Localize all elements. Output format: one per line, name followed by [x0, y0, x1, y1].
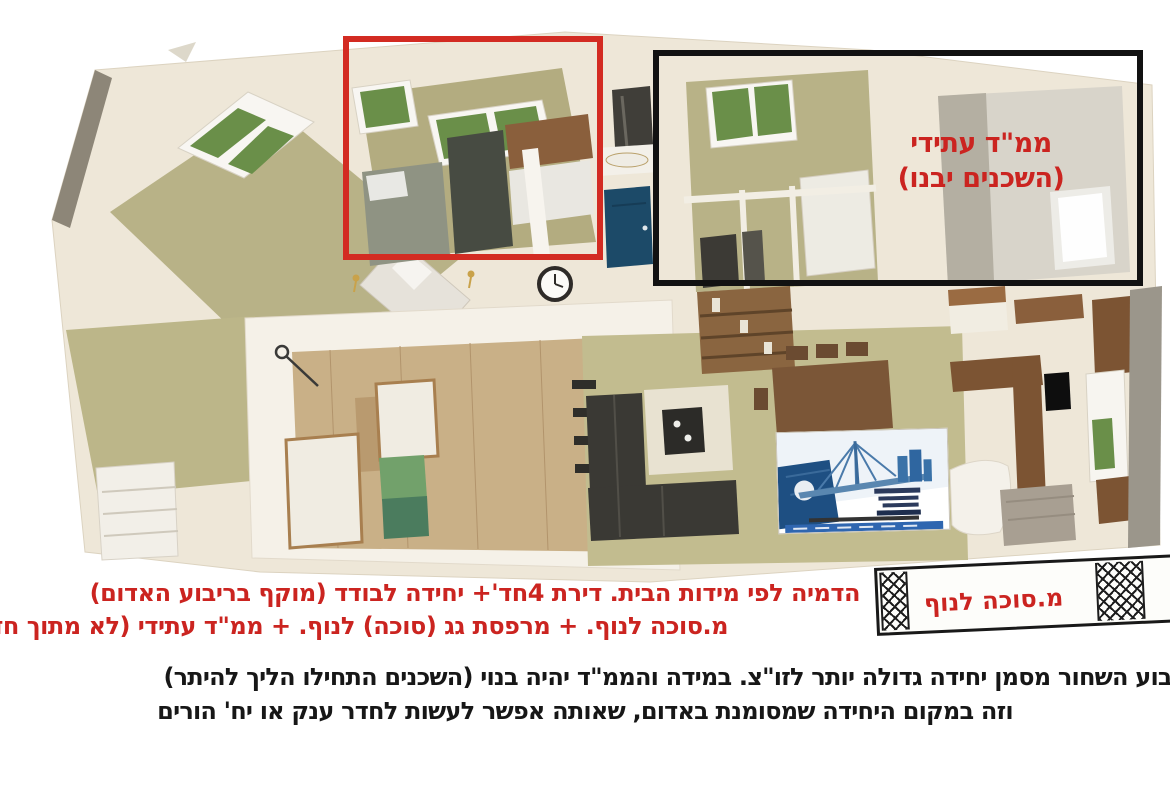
coffee-table: [662, 407, 705, 455]
mamad-label-line2: (השכנים יבנו): [856, 161, 1106, 196]
screenshot-stage: ממ"ד עתידי (השכנים יבנו) מ.סוכה לנוף: [0, 0, 1170, 785]
buildings-icon: [897, 456, 908, 482]
caption-red-line2: מ.סוכה לנוף. + מרפסת גג (סוכה) לנוף. + מ…: [0, 612, 728, 640]
sukkah-balcony-marker: מ.סוכה לנוף: [874, 554, 1170, 636]
caption-black-line1: יבוע השחור מסמן יחידה גדולה יותר לזו"צ. …: [163, 663, 1170, 691]
dining-chair: [846, 342, 868, 356]
hatch-band-icon: [879, 571, 910, 630]
dining-chair: [786, 346, 808, 360]
dining-chair: [754, 388, 768, 410]
entry-decor: [606, 153, 648, 167]
dining-table: [772, 360, 893, 436]
dining-chair: [816, 344, 838, 358]
mamad-label-line1: ממ"ד עתידי: [856, 126, 1106, 161]
hatch-band-icon: [1095, 561, 1146, 621]
tv-panel: [1044, 372, 1071, 411]
kids-bed-b: [376, 380, 438, 460]
mamad-label: ממ"ד עתידי (השכנים יבנו): [856, 126, 1106, 196]
counter-l-side: [1012, 357, 1046, 503]
wall-sconce: [468, 271, 475, 278]
caption-red-line1: הדמיה לפי מידות הבית. דירת 4חד'+ יחידה ל…: [90, 579, 860, 607]
sukkah-label: מ.סוכה לנוף: [918, 583, 1069, 618]
right-wall: [1128, 286, 1162, 548]
business-card: [776, 428, 951, 534]
green-blanket: [379, 455, 427, 501]
kids-bed-a: [286, 434, 362, 548]
red-unit-outline: [343, 36, 603, 260]
wall-fragment: [168, 42, 196, 62]
business-card-graphic: [777, 429, 950, 533]
wall-sconce: [353, 275, 360, 282]
caption-black-line2: וזה במקום היחידה שמסומנת באדום, שאותה אפ…: [0, 697, 1170, 725]
